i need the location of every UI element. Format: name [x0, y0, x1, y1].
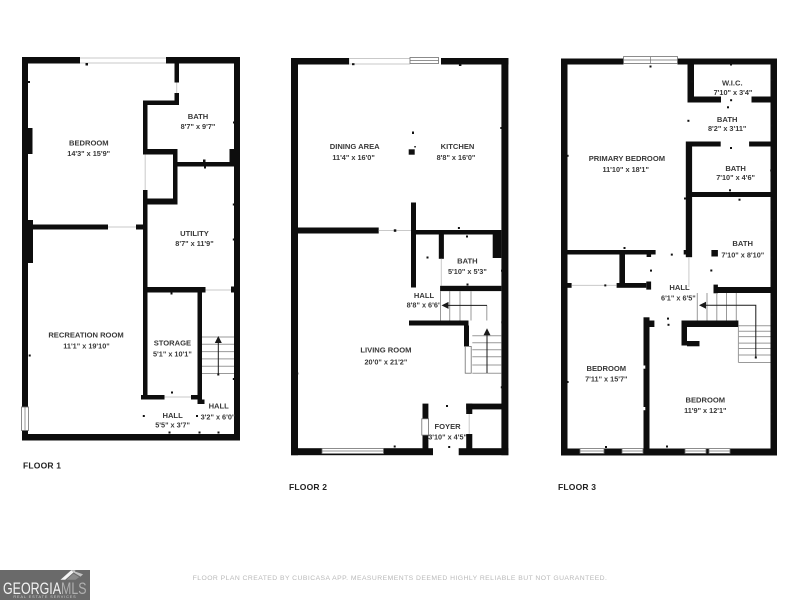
svg-text:HALL: HALL [414, 291, 435, 300]
svg-text:7'10" x 3'4": 7'10" x 3'4" [714, 88, 753, 97]
svg-text:DINING AREA: DINING AREA [330, 142, 380, 151]
svg-text:7'10" x 8'10": 7'10" x 8'10" [721, 250, 764, 259]
svg-text:11'1" x 19'10": 11'1" x 19'10" [63, 342, 110, 351]
svg-text:FOYER: FOYER [435, 422, 462, 431]
svg-text:FLOOR PLAN CREATED BY CUBICASA: FLOOR PLAN CREATED BY CUBICASA APP. MEAS… [193, 575, 608, 582]
svg-text:LIVING ROOM: LIVING ROOM [360, 346, 411, 355]
svg-text:BEDROOM: BEDROOM [586, 364, 626, 373]
svg-text:FLOOR 1: FLOOR 1 [23, 461, 61, 471]
svg-text:20'0" x 21'2": 20'0" x 21'2" [364, 357, 407, 366]
svg-text:HALL: HALL [209, 402, 230, 411]
svg-text:STORAGE: STORAGE [154, 339, 191, 348]
svg-text:FLOOR 3: FLOOR 3 [558, 482, 596, 492]
svg-text:REAL ESTATE SERVICES: REAL ESTATE SERVICES [13, 595, 76, 599]
svg-text:BEDROOM: BEDROOM [69, 138, 109, 147]
svg-text:5'1" x 10'1": 5'1" x 10'1" [153, 349, 192, 358]
svg-text:8'8" x 16'0": 8'8" x 16'0" [437, 153, 476, 162]
svg-text:PRIMARY BEDROOM: PRIMARY BEDROOM [589, 154, 665, 163]
svg-text:BATH: BATH [725, 164, 746, 173]
svg-text:BATH: BATH [188, 112, 209, 121]
svg-text:FLOOR 2: FLOOR 2 [289, 482, 327, 492]
svg-text:7'10" x 4'6": 7'10" x 4'6" [716, 173, 755, 182]
svg-text:8'8" x 6'6": 8'8" x 6'6" [407, 301, 442, 310]
svg-text:3'2" x 6'0": 3'2" x 6'0" [201, 412, 236, 421]
svg-text:HALL: HALL [669, 283, 690, 292]
svg-text:11'10" x 18'1": 11'10" x 18'1" [602, 165, 649, 174]
svg-text:BATH: BATH [457, 257, 478, 266]
svg-text:14'3" x 15'9": 14'3" x 15'9" [67, 149, 110, 158]
svg-text:5'5" x 3'7": 5'5" x 3'7" [155, 420, 190, 429]
svg-text:BEDROOM: BEDROOM [685, 395, 725, 404]
svg-text:BATH: BATH [732, 239, 753, 248]
svg-text:W.I.C.: W.I.C. [722, 79, 743, 88]
svg-text:HALL: HALL [162, 411, 183, 420]
svg-text:7'11" x 15'7": 7'11" x 15'7" [585, 374, 627, 383]
svg-text:RECREATION ROOM: RECREATION ROOM [48, 331, 123, 340]
svg-text:11'9" x 12'1": 11'9" x 12'1" [684, 406, 726, 415]
svg-text:BATH: BATH [717, 115, 738, 124]
svg-text:8'7" x 9'7": 8'7" x 9'7" [181, 122, 216, 131]
svg-text:8'7" x 11'9": 8'7" x 11'9" [175, 239, 213, 248]
svg-text:KITCHEN: KITCHEN [441, 142, 475, 151]
svg-text:8'2" x 3'11": 8'2" x 3'11" [708, 124, 746, 133]
svg-text:3'10" x 4'5": 3'10" x 4'5" [428, 433, 467, 442]
svg-text:11'4" x 16'0": 11'4" x 16'0" [332, 153, 374, 162]
svg-text:5'10" x 5'3": 5'10" x 5'3" [448, 267, 487, 276]
svg-text:6'1" x 6'5": 6'1" x 6'5" [661, 293, 696, 302]
svg-text:UTILITY: UTILITY [180, 229, 209, 238]
